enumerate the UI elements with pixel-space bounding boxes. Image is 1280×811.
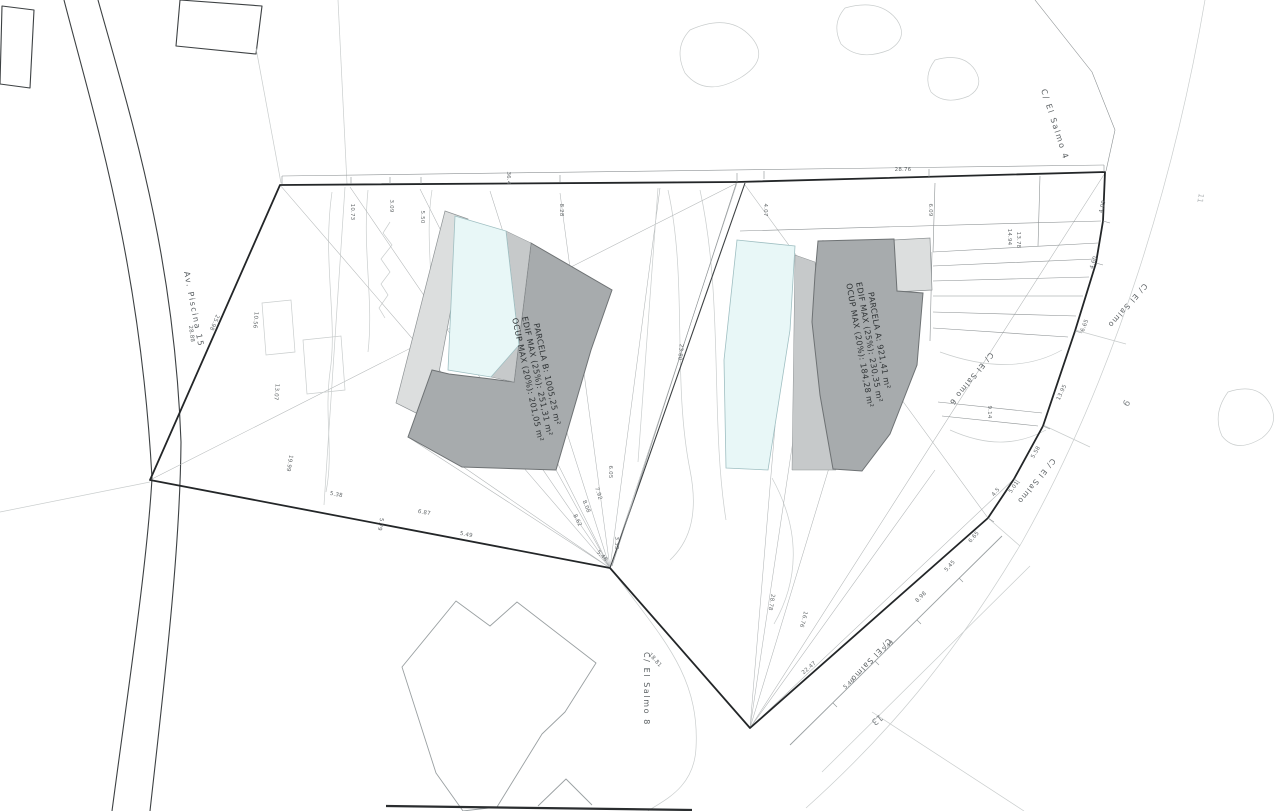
parcel-a-terrace bbox=[893, 238, 932, 292]
dimension-label: 5.50 bbox=[419, 210, 425, 223]
dimension-label: 25.98 bbox=[208, 314, 220, 332]
dimension-label: 13.07 bbox=[272, 383, 279, 401]
lot-number-label: 13 bbox=[869, 712, 884, 727]
neighbor-structures bbox=[0, 0, 1205, 811]
lot-number-label: 11 bbox=[1195, 193, 1206, 204]
site-outline bbox=[150, 172, 1105, 728]
dimension-label: 36.4 bbox=[505, 171, 511, 184]
dimension-label: 4.09 bbox=[1099, 199, 1108, 213]
dimension-label: 19.99 bbox=[285, 454, 294, 472]
dimension-label: 10.73 bbox=[349, 204, 355, 221]
dimension-label: 6.65 bbox=[968, 530, 981, 544]
dimension-label: 6.87 bbox=[417, 509, 431, 517]
dimension-label: 28.76 bbox=[895, 167, 912, 173]
site-plan-page: PARCELA B: 1005,25 m² EDIF MAX (25%): 25… bbox=[0, 0, 1280, 811]
dimension-label: 6.09 bbox=[927, 203, 933, 216]
dimension-label: 28.88 bbox=[187, 325, 195, 343]
dimension-label: 14.94 bbox=[1006, 229, 1012, 246]
dimension-label: 3.09 bbox=[388, 199, 394, 212]
top-dimension-line bbox=[282, 165, 1104, 176]
corner-building-2 bbox=[176, 0, 262, 54]
dimension-label: 3.33 bbox=[613, 536, 619, 549]
site-boundary bbox=[150, 165, 1110, 728]
bottom-edge-line bbox=[386, 806, 692, 810]
street-label: C/ El Salmo 4 bbox=[1039, 88, 1070, 161]
dimension-label: 4.5 bbox=[991, 487, 1002, 498]
dimension-label: 5.49 bbox=[459, 531, 473, 539]
dimension-label: 13.78 bbox=[1015, 232, 1021, 249]
survey-rays bbox=[150, 173, 1105, 728]
dimension-label: 4.60 bbox=[1089, 255, 1099, 270]
neighbor-house-gable bbox=[538, 779, 592, 806]
dimension-label: 22.47 bbox=[801, 660, 818, 676]
neighbor-boundary-topright bbox=[1035, 0, 1115, 171]
dimension-label: 6.65 bbox=[1080, 318, 1090, 333]
road-edge-inner bbox=[98, 0, 181, 442]
dimension-label: 6.05 bbox=[607, 465, 613, 478]
dimension-label: 8.98 bbox=[915, 590, 929, 604]
street-label: C/ El Salmo bbox=[1106, 282, 1149, 330]
corner-building-1 bbox=[0, 6, 34, 88]
street-line-se bbox=[790, 536, 1002, 745]
parcel-a-pool bbox=[724, 240, 795, 470]
dimension-label: 5.38 bbox=[329, 491, 343, 499]
site-plan-drawing: PARCELA B: 1005,25 m² EDIF MAX (25%): 25… bbox=[0, 0, 1280, 811]
lot-number-label: 9 bbox=[1119, 398, 1131, 408]
dimension-label: 5.01 bbox=[1008, 480, 1020, 494]
road-edge-outer bbox=[64, 0, 152, 478]
street-label: C/ El Salmo 8 bbox=[642, 652, 651, 726]
dimension-label: 13.95 bbox=[1056, 383, 1069, 401]
dimension-labels: 36.428.7610.733.095.508.284.076.0923.802… bbox=[187, 167, 1108, 691]
dimension-label: 23.80 bbox=[676, 343, 684, 361]
dimension-label: 28.78 bbox=[767, 593, 776, 611]
dimension-label: 10.56 bbox=[251, 311, 258, 329]
dimension-label: 4.07 bbox=[762, 203, 768, 216]
street-label: C/ El Salmo 6 bbox=[947, 351, 995, 408]
dimension-label: 8.28 bbox=[558, 203, 564, 216]
parcel-a-buildings: PARCELA A: 921,41 m² EDIF MAX (25%): 230… bbox=[724, 238, 932, 471]
dimension-label: 9.14 bbox=[986, 405, 992, 418]
dimension-label: 5.45 bbox=[944, 559, 957, 573]
dimension-label: 7.92 bbox=[593, 487, 603, 501]
parcel-a-north-inner-line bbox=[740, 221, 1101, 231]
dimension-label: 8.08 bbox=[581, 499, 592, 514]
dimension-label: 16.76 bbox=[798, 610, 808, 628]
dimension-label: 5.79 bbox=[376, 517, 384, 531]
parcel-b-buildings: PARCELA B: 1005,25 m² EDIF MAX (25%): 25… bbox=[396, 211, 612, 470]
